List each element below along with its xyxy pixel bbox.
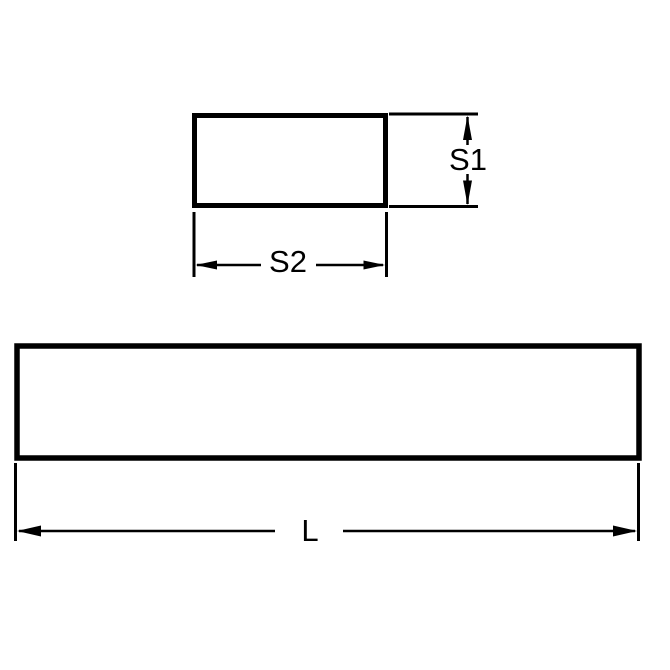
s1-dimension: S1 xyxy=(389,114,487,207)
s2-dimension: S2 xyxy=(194,212,387,279)
l-arrowhead-left xyxy=(17,526,41,537)
side-view-rect xyxy=(17,346,639,458)
s1-arrowhead-down xyxy=(463,181,472,206)
dimension-drawing: S1 S2 L xyxy=(0,0,670,670)
drawing-canvas: S1 S2 L xyxy=(0,0,670,670)
l-arrowhead-right xyxy=(613,526,637,537)
side-view: L xyxy=(16,346,640,548)
cross-section-view: S1 S2 xyxy=(194,114,487,279)
cross-section-rect xyxy=(195,116,386,206)
l-label: L xyxy=(301,513,318,548)
s2-arrowhead-right xyxy=(364,261,386,270)
s2-arrowhead-left xyxy=(196,261,218,270)
s1-label: S1 xyxy=(449,142,487,177)
l-dimension: L xyxy=(16,463,639,548)
s1-arrowhead-up xyxy=(463,116,472,141)
s2-label: S2 xyxy=(269,244,307,279)
